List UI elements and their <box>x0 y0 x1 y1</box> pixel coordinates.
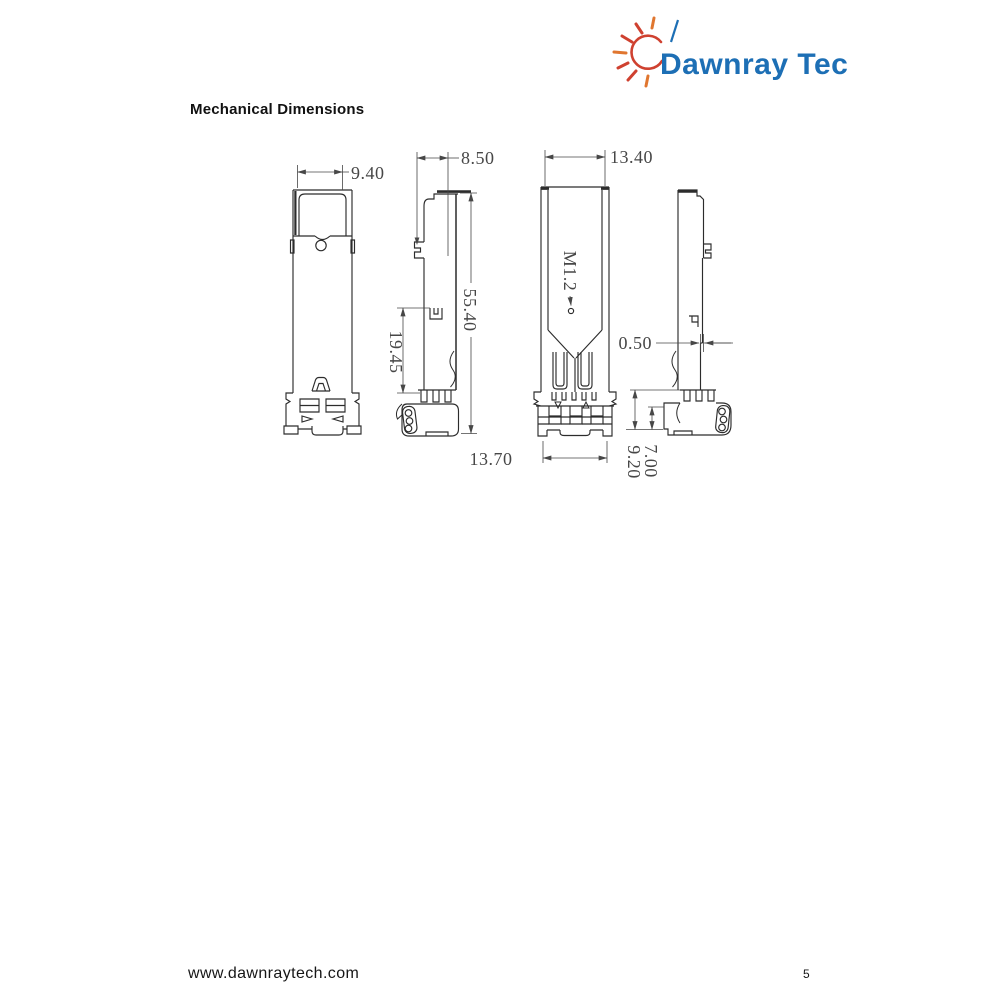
bottom-view <box>534 187 616 436</box>
dim-side-width: 8.50 <box>461 148 495 168</box>
dimension-lines <box>298 150 734 463</box>
mechanical-drawing: 9.40 8.50 55.40 19.45 13.40 M1.2 0.50 13… <box>270 130 780 500</box>
logo-text: Dawnray Tech <box>660 48 848 81</box>
side-view-left <box>396 192 471 436</box>
dim-front-width: 9.40 <box>351 163 385 183</box>
page-number: 5 <box>803 967 810 981</box>
dim-edge-step: 0.50 <box>619 333 653 353</box>
dimension-labels: 9.40 8.50 55.40 19.45 13.40 M1.2 0.50 13… <box>351 147 661 479</box>
side-view-right <box>664 190 731 435</box>
datasheet-page: Dawnray Tech Mechanical Dimensions <box>0 0 1000 1000</box>
dim-connector-width: 13.70 <box>470 449 513 469</box>
sun-icon <box>614 18 662 86</box>
dim-tail-height-inner: 7.00 <box>641 444 661 478</box>
page-title: Mechanical Dimensions <box>190 101 364 118</box>
dim-spring-to-end: 19.45 <box>386 331 406 374</box>
dim-screw-thread: M1.2 <box>560 251 580 292</box>
front-view <box>284 190 361 435</box>
footer-website: www.dawnraytech.com <box>188 965 359 983</box>
compass-needle-icon <box>671 20 678 42</box>
company-logo: Dawnray Tech <box>598 12 848 92</box>
dim-overall-length: 55.40 <box>460 289 480 332</box>
dim-body-width: 13.40 <box>610 147 653 167</box>
dim-tail-height-outer: 9.20 <box>624 445 644 479</box>
